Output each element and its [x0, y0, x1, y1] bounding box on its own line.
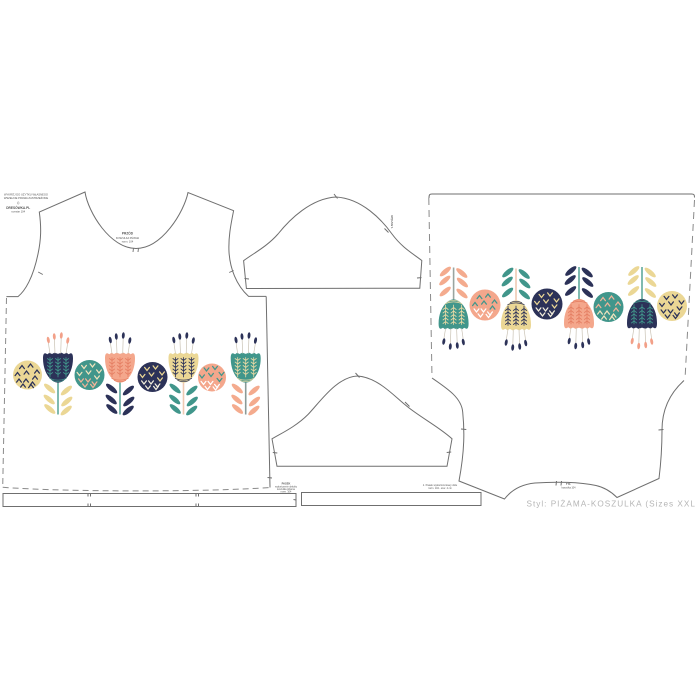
- svg-text:rozmiar 104: rozmiar 104: [11, 210, 25, 214]
- svg-text:rozm. 104: rozm. 104: [281, 490, 292, 493]
- svg-text:Styl: PIŻAMA-KOSZULKA (Sizes X: Styl: PIŻAMA-KOSZULKA (Sizes XXL: [527, 499, 696, 509]
- svg-text:RĘKAW 1: RĘKAW 1: [390, 215, 394, 229]
- svg-text:TYŁ: TYŁ: [566, 482, 571, 486]
- svg-text:PRZÓD: PRZÓD: [122, 231, 134, 236]
- svg-text:koszulka 104: koszulka 104: [562, 486, 577, 489]
- svg-text:KOSZULKA PIŻAMA: KOSZULKA PIŻAMA: [116, 237, 140, 240]
- svg-text:rozm. 104: rozm. 104: [122, 239, 134, 243]
- svg-text:DRESÓWKA.PL: DRESÓWKA.PL: [6, 205, 30, 210]
- svg-text:rozm. 104 - szer. 4 cm: rozm. 104 - szer. 4 cm: [428, 487, 452, 490]
